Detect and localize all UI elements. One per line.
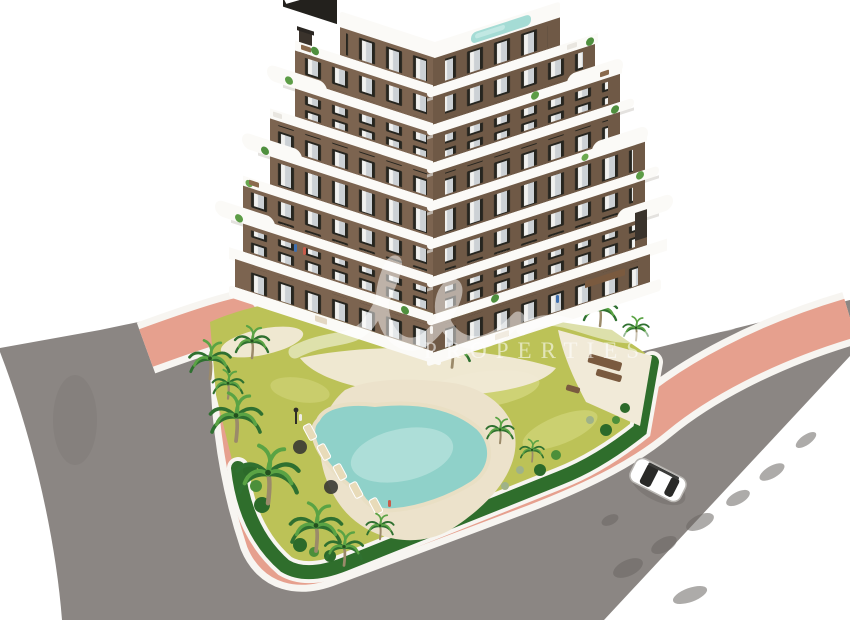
- scene-svg: PROPERTIES: [0, 0, 850, 620]
- parasol: [293, 440, 307, 454]
- watermark-caption: PROPERTIES: [424, 338, 648, 363]
- parasol: [324, 480, 338, 494]
- chimney: [635, 209, 647, 241]
- pool-lamp: [295, 412, 297, 424]
- render-canvas: PROPERTIES: [0, 0, 850, 620]
